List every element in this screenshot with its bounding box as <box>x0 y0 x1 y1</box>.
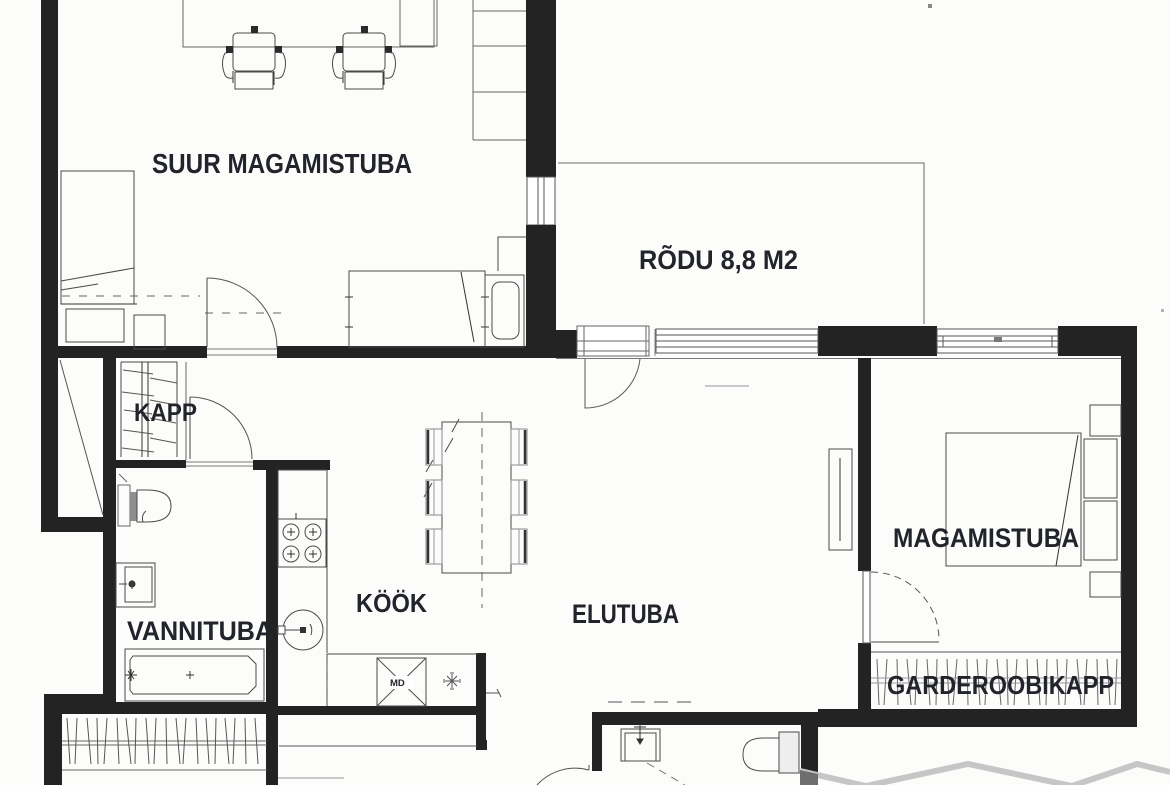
svg-text:MD: MD <box>390 678 405 689</box>
svg-text:MAGAMISTUBA: MAGAMISTUBA <box>893 523 1079 553</box>
svg-text:ELUTUBA: ELUTUBA <box>572 599 679 629</box>
svg-text:RÕDU 8,8 M2: RÕDU 8,8 M2 <box>639 244 798 275</box>
svg-text:GARDEROOBIKAPP: GARDEROOBIKAPP <box>887 670 1114 700</box>
svg-text:VANNITUBA: VANNITUBA <box>127 616 273 646</box>
svg-text:SUUR MAGAMISTUBA: SUUR MAGAMISTUBA <box>152 148 412 179</box>
svg-text:KÖÖK: KÖÖK <box>356 588 427 618</box>
svg-text:KAPP: KAPP <box>134 399 197 427</box>
